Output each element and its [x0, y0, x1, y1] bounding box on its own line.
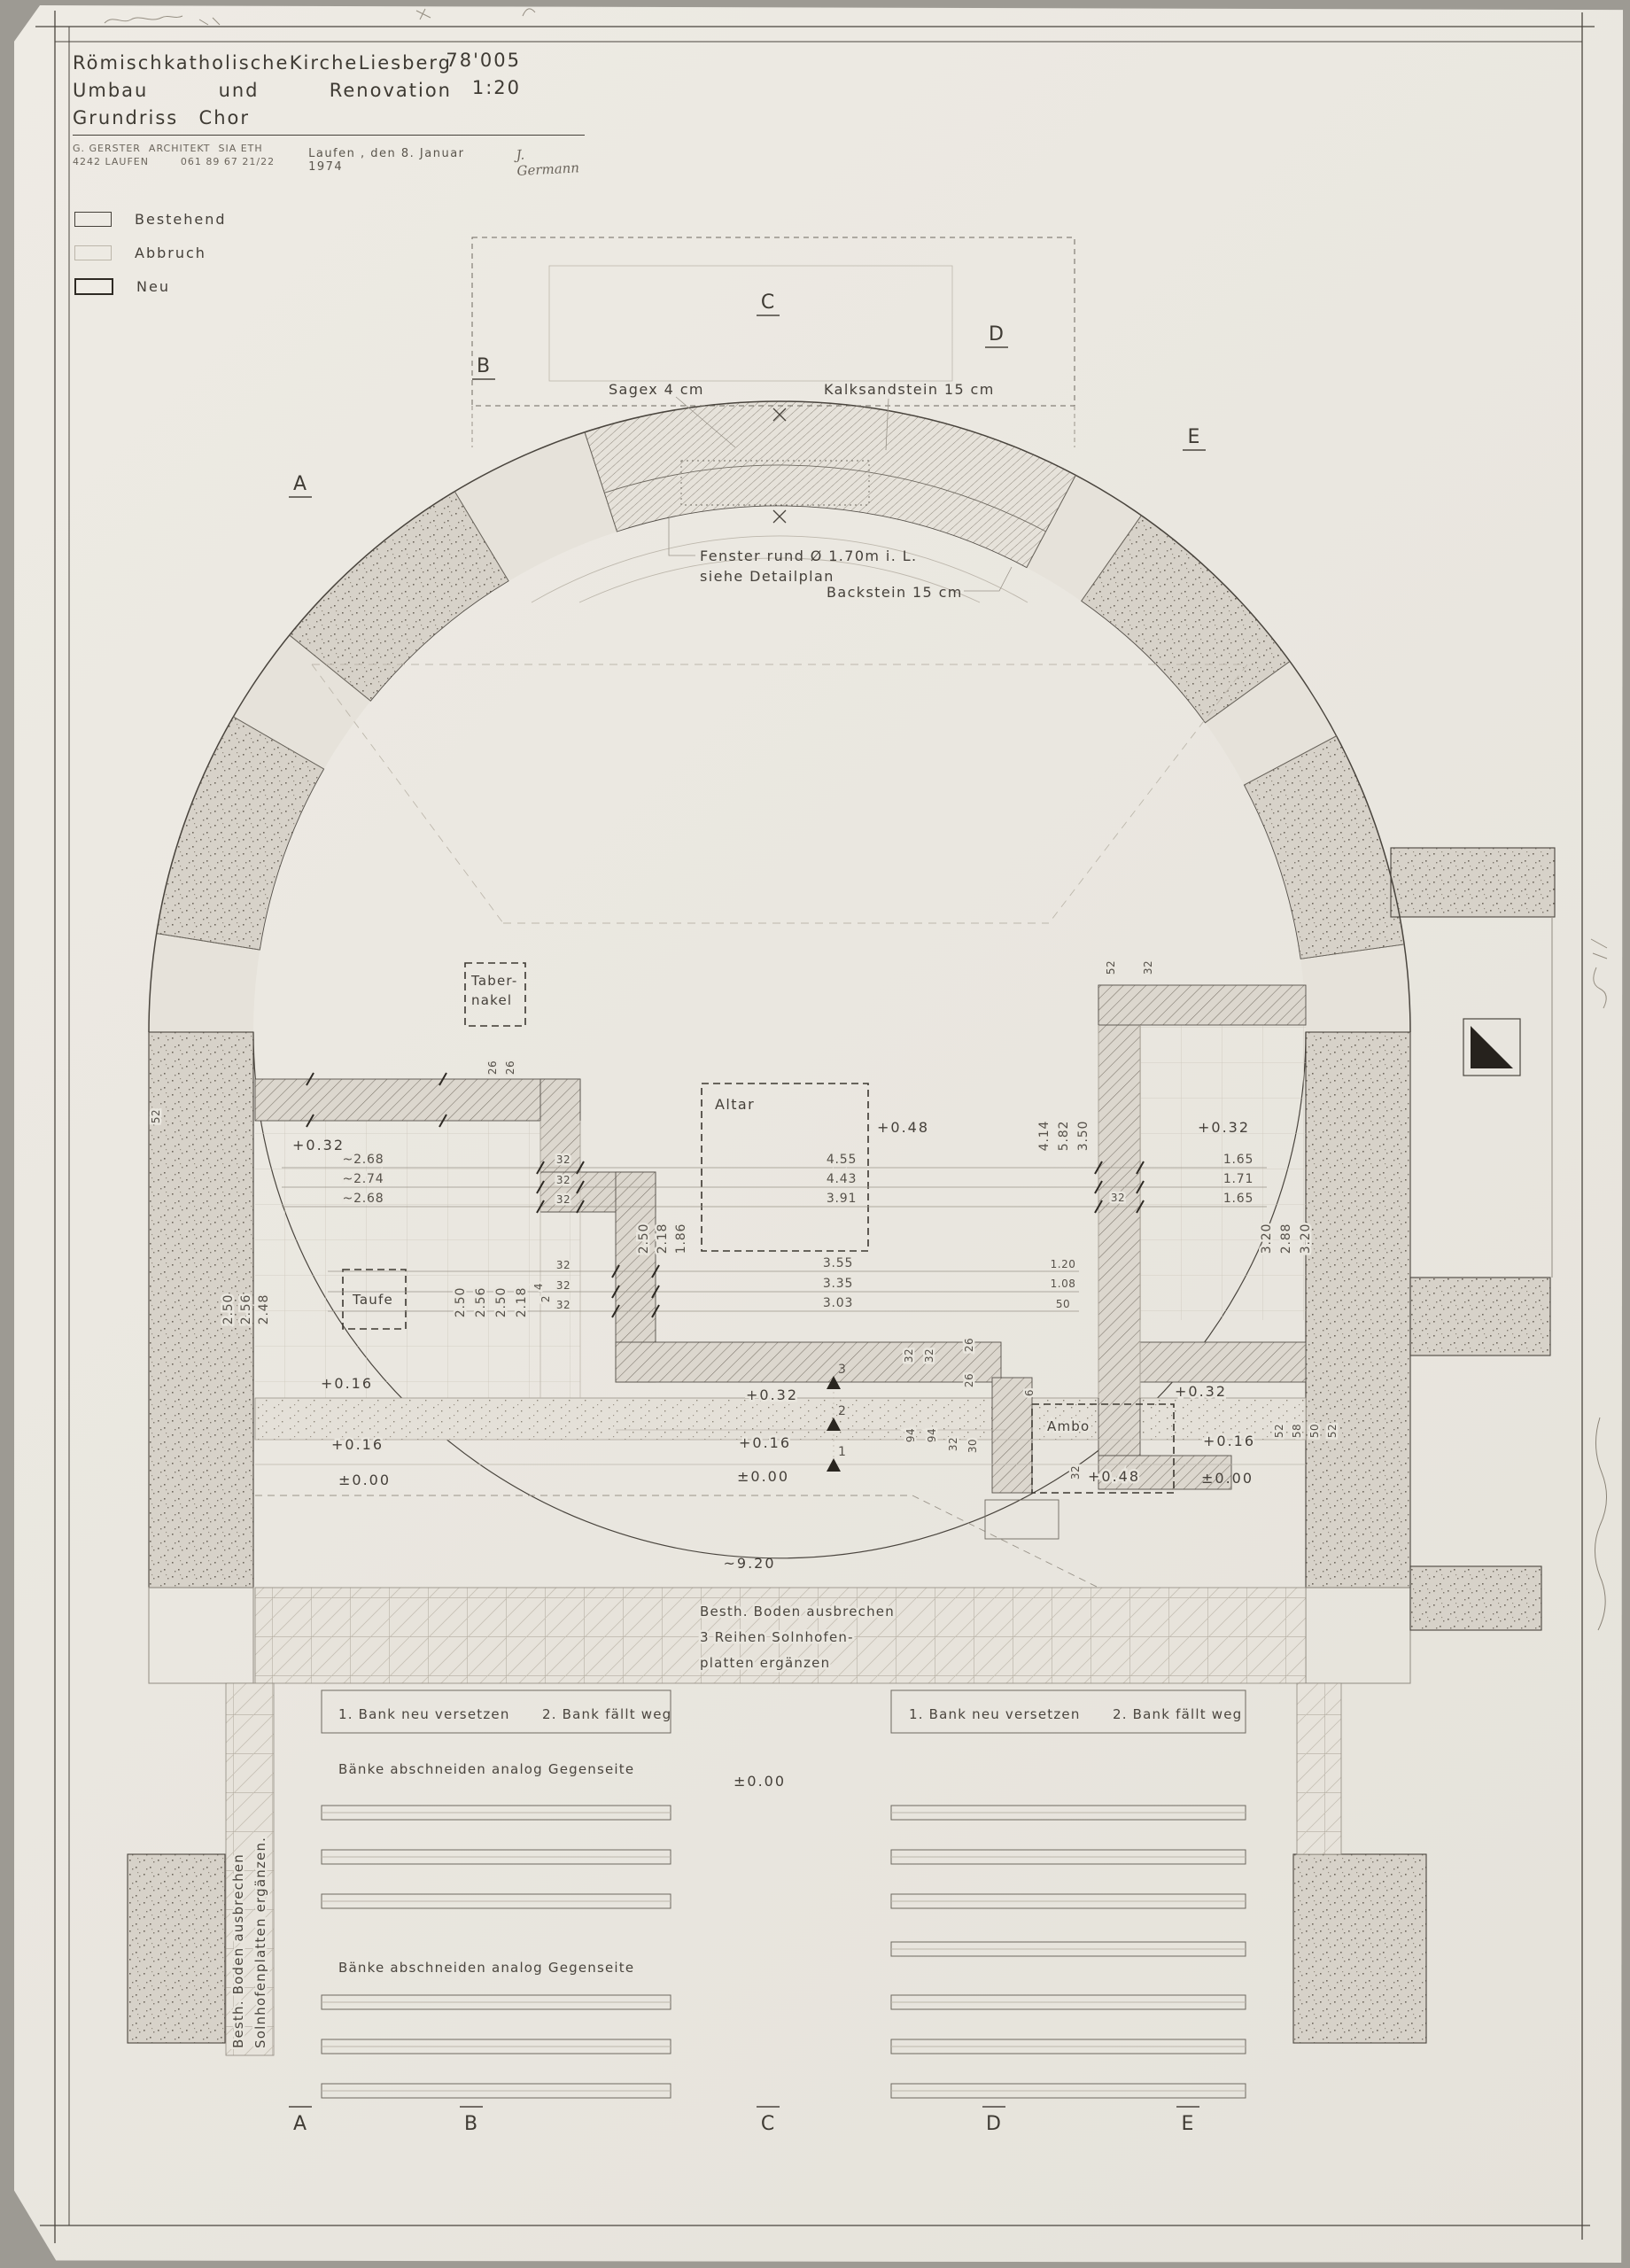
fenster-label-1: Fenster rund Ø 1.70m i. L.	[700, 548, 918, 564]
step-number-1: 1	[838, 1445, 847, 1459]
dim-label: 52	[1273, 1424, 1285, 1438]
architect-stamp: G. GERSTER ARCHITEKT SIA ETH4242 LAUFEN …	[73, 142, 583, 177]
photographed-architectural-plan: { "title_block": { "line1_w1": "Römisch"…	[0, 0, 1630, 2268]
section-top-a: A	[293, 473, 307, 495]
round-window-wall	[585, 401, 1075, 568]
title-word: und	[219, 77, 260, 105]
level-altar: +0.48	[877, 1119, 929, 1136]
ambo-label: Ambo	[1047, 1418, 1090, 1434]
section-top-b: B	[477, 355, 491, 377]
ambo-plinth	[985, 1500, 1059, 1539]
dim-label: 2.56	[474, 1287, 488, 1317]
title-word: Kirche	[290, 50, 359, 77]
legend-item-demolition: Abbruch	[74, 245, 227, 261]
demolition-lines	[312, 664, 1247, 923]
hatched-pier-marker	[1463, 1019, 1520, 1076]
title-word: Renovation	[330, 77, 452, 105]
dim-label: 94	[926, 1428, 938, 1442]
dim-label: ~2.68	[343, 1192, 384, 1206]
dim-label: 52	[150, 1109, 162, 1123]
signature: J. Germann	[516, 144, 584, 179]
title-word: Grundriss	[73, 105, 178, 132]
bench-note-left-2: Bänke abschneiden analog Gegenseite	[338, 1761, 634, 1777]
dim-label: 4.43	[827, 1172, 857, 1186]
legend-label: Abbruch	[135, 245, 206, 261]
dim-label: 6	[1023, 1389, 1036, 1396]
level-right-zero: ±0.00	[1201, 1470, 1254, 1487]
level-center-zero: ±0.00	[737, 1468, 789, 1485]
solnhofen-strip-right	[1297, 1683, 1341, 1854]
dim-label: 1.71	[1223, 1172, 1254, 1186]
dim-label: 32	[1142, 960, 1154, 975]
title-word: Liesberg	[359, 50, 452, 77]
dim-label: 2.50	[454, 1287, 468, 1317]
dim-label: 1.20	[1051, 1258, 1076, 1270]
fenster-label-2: siehe Detailplan	[700, 568, 834, 585]
legend-item-existing: Bestehend	[74, 211, 227, 228]
section-top-e: E	[1188, 426, 1201, 448]
dim-label: 5.82	[1057, 1121, 1071, 1151]
architect-name: G. GERSTER ARCHITEKT SIA ETH	[73, 143, 263, 154]
title-underline	[73, 135, 585, 136]
dim-label: 32	[923, 1348, 935, 1363]
title-word: Umbau	[73, 77, 148, 105]
dim-label: 2.18	[656, 1223, 670, 1254]
taufe-label: Taufe	[352, 1292, 393, 1308]
sagex-label: Sagex 4 cm	[609, 381, 704, 398]
dim-label: 3.03	[823, 1296, 853, 1310]
dim-label: 2.50	[637, 1223, 651, 1254]
dim-label: 32	[947, 1437, 959, 1451]
level-right-low: +0.16	[1203, 1433, 1255, 1449]
section-bottom-c: C	[761, 2113, 775, 2135]
legend-label: Bestehend	[135, 211, 227, 228]
bench-group-right	[891, 1690, 1246, 2098]
floor-plates-left	[255, 1121, 580, 1398]
section-top-c: C	[761, 291, 775, 314]
bench-group-left	[322, 1690, 671, 2098]
backstein-label: Backstein 15 cm	[827, 584, 963, 601]
dim-label: ~2.68	[343, 1153, 384, 1167]
dim-label: 26	[963, 1373, 975, 1387]
project-number: 78'005	[446, 50, 521, 71]
legend: Bestehend Abbruch Neu	[74, 211, 227, 312]
level-bottom-zero: ±0.00	[733, 1773, 786, 1790]
floor-note-vert-2: Solnhofenplatten ergänzen.	[252, 1837, 268, 2048]
dim-label: 50	[1308, 1424, 1321, 1438]
step-number-3: 3	[838, 1363, 847, 1377]
level-left-mid: +0.16	[321, 1375, 373, 1392]
bench-note-left-1b: 2. Bank fällt weg	[542, 1706, 671, 1722]
section-bottom-b: B	[464, 2113, 478, 2135]
dim-label: 52	[1326, 1424, 1339, 1438]
architect-address: 4242 LAUFEN 061 89 67 21/22	[73, 156, 275, 167]
dim-label: 94	[904, 1428, 917, 1442]
section-bottom-d: D	[986, 2113, 1002, 2135]
dim-label: 32	[556, 1299, 570, 1311]
level-center-low: +0.16	[739, 1434, 791, 1451]
title-word: Chor	[199, 105, 250, 132]
title-line-2: Umbau und Renovation	[73, 77, 452, 105]
chancel-platform	[255, 985, 1306, 1588]
level-right-top: +0.32	[1198, 1119, 1250, 1136]
dim-label: 2.50	[494, 1287, 508, 1317]
title-word: katholische	[164, 50, 289, 77]
level-left-zero: ±0.00	[338, 1472, 391, 1488]
legend-item-new: Neu	[74, 278, 227, 295]
floor-note-3: platten ergänzen	[700, 1655, 830, 1671]
altar-label: Altar	[715, 1096, 755, 1113]
dim-label: 3.50	[1076, 1121, 1091, 1151]
dim-label: 58	[1291, 1424, 1303, 1438]
dim-label: 1.86	[674, 1223, 688, 1254]
architect-info: G. GERSTER ARCHITEKT SIA ETH4242 LAUFEN …	[73, 142, 275, 168]
title-block: Römisch katholische Kirche Liesberg Umba…	[73, 50, 583, 177]
section-bottom-e: E	[1182, 2113, 1195, 2135]
floor-note-2: 3 Reihen Solnhofen-	[700, 1629, 854, 1645]
dim-label: 32	[556, 1174, 570, 1186]
dim-label: 3.20	[1260, 1223, 1274, 1254]
legend-swatch-new	[74, 278, 113, 295]
legend-swatch-demolition	[74, 245, 112, 260]
dim-label: 32	[903, 1348, 915, 1363]
dim-label: 2.48	[257, 1294, 271, 1324]
level-ambo: +0.48	[1088, 1468, 1140, 1485]
tabernakel-label-1: Taber-	[470, 973, 517, 989]
dim-label: 2	[539, 1295, 552, 1302]
drawing-scale: 1:20	[472, 77, 521, 98]
bench-note-right-1b: 2. Bank fällt weg	[1113, 1706, 1242, 1722]
level-right-step: +0.32	[1175, 1383, 1227, 1400]
legend-swatch-existing	[74, 212, 112, 227]
dim-label: 32	[556, 1279, 570, 1292]
dim-label: 26	[963, 1338, 975, 1352]
section-bottom-a: A	[293, 2113, 307, 2135]
title-line-3: Grundriss Chor	[73, 105, 250, 132]
dim-label: 2.18	[515, 1287, 529, 1317]
floor-break-line	[255, 1495, 1098, 1588]
dim-label: 4	[532, 1283, 545, 1290]
level-center-step: +0.32	[746, 1386, 798, 1403]
dim-label: 32	[556, 1153, 570, 1166]
dim-label: 26	[486, 1060, 499, 1075]
dim-label: 30	[966, 1439, 979, 1453]
dim-label: 52	[1105, 960, 1117, 975]
level-left-top: +0.32	[292, 1137, 345, 1153]
dim-label: 1.65	[1223, 1192, 1254, 1206]
date-line: Laufen , den 8. Januar 1974	[308, 147, 482, 174]
depth-label: ~9.20	[723, 1555, 775, 1572]
dim-label: 3.91	[827, 1192, 857, 1206]
dim-label: 32	[556, 1259, 570, 1271]
dim-label: 4.55	[827, 1153, 857, 1167]
dim-label: 32	[1111, 1192, 1125, 1204]
floor-note-1: Besth. Boden ausbrechen	[700, 1604, 895, 1619]
legend-label: Neu	[136, 278, 170, 295]
bench-note-left-1a: 1. Bank neu versetzen	[338, 1706, 510, 1722]
dim-label: 2.88	[1279, 1223, 1293, 1254]
dim-label: ~2.74	[343, 1172, 384, 1186]
dim-label: 32	[1069, 1465, 1082, 1480]
dim-label: 2.56	[239, 1294, 253, 1324]
dim-label: 3.55	[823, 1256, 853, 1270]
bench-note-right-1a: 1. Bank neu versetzen	[909, 1706, 1081, 1722]
dim-label: 50	[1056, 1298, 1070, 1310]
title-line-1: Römisch katholische Kirche Liesberg	[73, 50, 452, 77]
dim-label: 2.50	[221, 1294, 236, 1324]
level-left-low: +0.16	[331, 1436, 384, 1453]
tabernakel-label-2: nakel	[471, 992, 512, 1008]
dim-label: 1.08	[1051, 1278, 1076, 1290]
bench-note-left-3: Bänke abschneiden analog Gegenseite	[338, 1960, 634, 1976]
step-number-2: 2	[838, 1404, 847, 1418]
floor-note-vert-1: Besth. Boden ausbrechen	[230, 1853, 246, 2048]
kalksandstein-label: Kalksandstein 15 cm	[824, 381, 995, 398]
title-word: Römisch	[73, 50, 164, 77]
dim-label: 32	[556, 1193, 570, 1206]
dim-label: 4.14	[1037, 1121, 1052, 1151]
dim-label: 3.20	[1299, 1223, 1313, 1254]
plan-canvas: Sagex 4 cm Kalksandstein 15 cm Fenster r…	[0, 0, 1630, 2268]
dim-label: 3.35	[823, 1277, 853, 1291]
dim-label: 1.65	[1223, 1153, 1254, 1167]
section-top-d: D	[989, 323, 1005, 346]
dim-label: 26	[504, 1060, 516, 1075]
